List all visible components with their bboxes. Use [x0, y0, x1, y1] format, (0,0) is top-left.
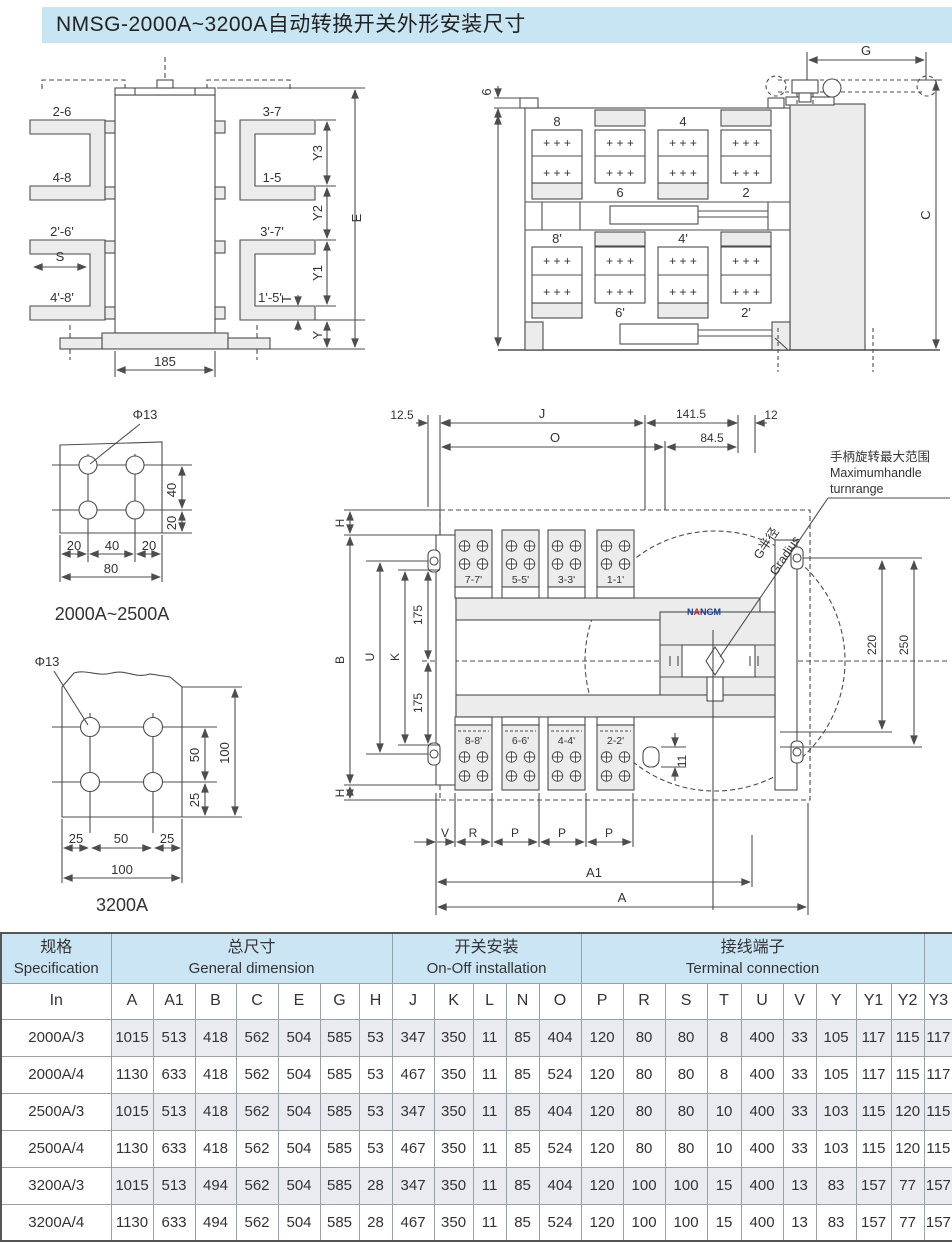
value-cell: 115: [891, 1056, 924, 1093]
value-cell: 585: [320, 1093, 359, 1130]
terminal-label: 3'-7': [260, 224, 284, 239]
value-cell: 15: [707, 1204, 741, 1241]
value-cell: 467: [392, 1204, 434, 1241]
value-cell: 115: [856, 1130, 891, 1167]
value-cell: 80: [623, 1019, 665, 1056]
table-row: 2000A/4113063341856250458553467350118552…: [1, 1056, 952, 1093]
value-cell: 350: [434, 1056, 473, 1093]
value-cell: 562: [236, 1056, 278, 1093]
value-cell: 157: [856, 1204, 891, 1241]
dim-label: 25: [160, 831, 174, 846]
value-cell: 494: [195, 1204, 236, 1241]
dim-label: H: [333, 519, 347, 528]
terminal-label: 4'-8': [50, 290, 74, 305]
value-cell: 157: [924, 1167, 952, 1204]
handle-note-en1: Maximumhandle: [830, 466, 922, 480]
value-cell: 418: [195, 1093, 236, 1130]
svg-text:+ + +: + + +: [669, 136, 697, 150]
value-cell: 350: [434, 1093, 473, 1130]
value-cell: 400: [741, 1167, 783, 1204]
value-cell: 585: [320, 1019, 359, 1056]
svg-text:+ + +: + + +: [669, 254, 697, 268]
table-row: 2000A/3101551341856250458553347350118540…: [1, 1019, 952, 1056]
value-cell: 80: [623, 1130, 665, 1167]
value-cell: 404: [539, 1093, 581, 1130]
value-cell: 11: [473, 1167, 506, 1204]
value-cell: 1015: [111, 1093, 153, 1130]
front-view-labels: 12.5 J 141.5 12 O 84.5 H B H U K 175 175…: [333, 406, 930, 905]
column-header: S: [665, 983, 707, 1019]
value-cell: 585: [320, 1204, 359, 1241]
column-header: T: [707, 983, 741, 1019]
value-cell: 11: [473, 1019, 506, 1056]
column-header: A1: [153, 983, 195, 1019]
block-label: 2': [741, 305, 751, 320]
value-cell: 1130: [111, 1056, 153, 1093]
value-cell: 53: [359, 1093, 392, 1130]
dim-label: 12.5: [390, 408, 414, 422]
column-header: V: [783, 983, 816, 1019]
svg-text:+ + +: + + +: [732, 166, 760, 180]
column-header: Y: [816, 983, 856, 1019]
dim-label: 185: [154, 354, 176, 369]
terminal-label: 1-1': [607, 574, 624, 586]
value-cell: 350: [434, 1019, 473, 1056]
value-cell: 120: [581, 1019, 623, 1056]
plate-caption: 2000A~2500A: [55, 604, 170, 624]
value-cell: 504: [278, 1130, 320, 1167]
value-cell: 120: [581, 1130, 623, 1167]
spec-cell: 3200A/4: [1, 1204, 111, 1241]
dim-label: 40: [105, 538, 119, 553]
table-group-header-row: 规格Specification 总尺寸General dimension 开关安…: [1, 933, 952, 983]
value-cell: 1130: [111, 1204, 153, 1241]
value-cell: 562: [236, 1093, 278, 1130]
plate-2000-drawing: Φ13 40 20 20 40 20 80 2000A~2500A: [42, 402, 272, 637]
table-row: 3200A/4113063349456250458528467350118552…: [1, 1204, 952, 1241]
terminal-label: 4-4': [558, 735, 575, 747]
dim-label: E: [349, 213, 364, 222]
value-cell: 400: [741, 1093, 783, 1130]
plate-caption: 3200A: [96, 895, 148, 915]
value-cell: 347: [392, 1019, 434, 1056]
value-cell: 33: [783, 1093, 816, 1130]
value-cell: 77: [891, 1167, 924, 1204]
dim-label: U: [363, 653, 377, 662]
value-cell: 80: [623, 1093, 665, 1130]
table-row: 3200A/3101551349456250458528347350118540…: [1, 1167, 952, 1204]
value-cell: 117: [924, 1056, 952, 1093]
front-view-drawing: 12.5 J 141.5 12 O 84.5 H B H U K 175 175…: [330, 395, 952, 930]
value-cell: 513: [153, 1167, 195, 1204]
value-cell: 115: [924, 1130, 952, 1167]
value-cell: 400: [741, 1056, 783, 1093]
terminal-label: 8-8': [465, 735, 482, 747]
value-cell: 15: [707, 1167, 741, 1204]
value-cell: 467: [392, 1056, 434, 1093]
dim-label: P: [558, 826, 566, 840]
column-header: Y1: [856, 983, 891, 1019]
dim-label: O: [550, 430, 560, 445]
value-cell: 404: [539, 1167, 581, 1204]
svg-text:+ + +: + + +: [606, 136, 634, 150]
value-cell: 83: [816, 1167, 856, 1204]
group-empty: [924, 933, 952, 983]
dim-label: 250: [897, 635, 911, 655]
column-header: U: [741, 983, 783, 1019]
svg-text:+ + +: + + +: [543, 166, 571, 180]
spec-sheet-page: NMSG-2000A~3200A自动转换开关外形安装尺寸: [0, 0, 952, 1243]
table-row: 2500A/4113063341856250458553467350118552…: [1, 1130, 952, 1167]
column-header: R: [623, 983, 665, 1019]
svg-text:+ + +: + + +: [543, 136, 571, 150]
value-cell: 85: [506, 1019, 539, 1056]
handle-note-en2: turnrange: [830, 482, 884, 496]
value-cell: 11: [473, 1130, 506, 1167]
value-cell: 103: [816, 1130, 856, 1167]
value-cell: 115: [856, 1093, 891, 1130]
dim-label: 12: [764, 408, 778, 422]
value-cell: 494: [195, 1167, 236, 1204]
dim-label: 40: [164, 483, 179, 497]
value-cell: 633: [153, 1130, 195, 1167]
value-cell: 633: [153, 1204, 195, 1241]
dim-label: S: [56, 249, 65, 264]
dim-label: 100: [217, 742, 232, 764]
spec-cell: 2000A/3: [1, 1019, 111, 1056]
plate-3200-drawing: Φ13 50 25 100 25 50 25 100 3200A: [22, 643, 272, 928]
dim-label: P: [605, 826, 613, 840]
svg-text:+ + +: + + +: [606, 254, 634, 268]
value-cell: 585: [320, 1130, 359, 1167]
value-cell: 120: [891, 1130, 924, 1167]
side-view-drawing: 2-6 4-8 2'-6' 4'-8' 3-7 1-5 3'-7' 1'-5' …: [20, 55, 380, 400]
dim-label: 175: [411, 605, 425, 625]
value-cell: 11: [473, 1204, 506, 1241]
value-cell: 585: [320, 1056, 359, 1093]
dim-label: 11: [675, 754, 689, 767]
column-header: C: [236, 983, 278, 1019]
column-header: E: [278, 983, 320, 1019]
terminal-label: 5-5': [512, 574, 529, 586]
dim-label: 50: [114, 831, 128, 846]
value-cell: 80: [665, 1019, 707, 1056]
value-cell: 100: [665, 1167, 707, 1204]
value-cell: 504: [278, 1167, 320, 1204]
value-cell: 85: [506, 1093, 539, 1130]
value-cell: 400: [741, 1019, 783, 1056]
value-cell: 157: [924, 1204, 952, 1241]
dim-label: G: [861, 43, 871, 58]
column-header: G: [320, 983, 359, 1019]
value-cell: 80: [665, 1056, 707, 1093]
dim-label: 20: [67, 538, 81, 553]
value-cell: 400: [741, 1204, 783, 1241]
svg-text:+ + +: + + +: [732, 254, 760, 268]
value-cell: 504: [278, 1204, 320, 1241]
value-cell: 77: [891, 1204, 924, 1241]
block-label: 4': [678, 231, 688, 246]
value-cell: 117: [856, 1056, 891, 1093]
value-cell: 85: [506, 1056, 539, 1093]
value-cell: 524: [539, 1204, 581, 1241]
value-cell: 347: [392, 1093, 434, 1130]
column-header: L: [473, 983, 506, 1019]
value-cell: 33: [783, 1019, 816, 1056]
value-cell: 53: [359, 1130, 392, 1167]
dim-label: P: [511, 826, 519, 840]
value-cell: 105: [816, 1056, 856, 1093]
group-spec: 规格Specification: [1, 933, 111, 983]
value-cell: 83: [816, 1204, 856, 1241]
dim-label: 100: [111, 862, 133, 877]
dim-label: B: [333, 656, 347, 664]
dim-label: 50: [187, 748, 202, 762]
dim-label: Y3: [310, 145, 325, 161]
value-cell: 28: [359, 1204, 392, 1241]
value-cell: 53: [359, 1056, 392, 1093]
svg-text:+ + +: + + +: [669, 166, 697, 180]
value-cell: 633: [153, 1056, 195, 1093]
value-cell: 13: [783, 1204, 816, 1241]
dim-label: 141.5: [676, 407, 706, 421]
value-cell: 100: [665, 1204, 707, 1241]
value-cell: 350: [434, 1130, 473, 1167]
value-cell: 13: [783, 1167, 816, 1204]
column-header: B: [195, 983, 236, 1019]
dim-label: J: [539, 406, 546, 421]
dim-label: C: [918, 210, 933, 219]
column-header: Y3: [924, 983, 952, 1019]
dim-label: K: [388, 653, 402, 661]
value-cell: 513: [153, 1093, 195, 1130]
value-cell: 11: [473, 1093, 506, 1130]
value-cell: 100: [623, 1204, 665, 1241]
spec-cell: 2500A/3: [1, 1093, 111, 1130]
hole-diameter-label: Φ13: [35, 654, 60, 669]
value-cell: 85: [506, 1130, 539, 1167]
terminal-label: 7-7': [465, 574, 482, 586]
value-cell: 1015: [111, 1019, 153, 1056]
terminal-label: 2-6: [53, 104, 72, 119]
column-header: J: [392, 983, 434, 1019]
brand-logo: NANGM: [687, 607, 721, 617]
value-cell: 80: [623, 1056, 665, 1093]
value-cell: 350: [434, 1204, 473, 1241]
value-cell: 115: [924, 1093, 952, 1130]
value-cell: 120: [581, 1093, 623, 1130]
dim-label: 84.5: [700, 431, 724, 445]
dim-label: 20: [164, 516, 179, 530]
terminal-label: 2-2': [607, 735, 624, 747]
svg-text:+ + +: + + +: [732, 136, 760, 150]
terminal-label: 6-6': [512, 735, 529, 747]
svg-text:+ + +: + + +: [606, 166, 634, 180]
dim-label: Y1: [310, 265, 325, 281]
value-cell: 562: [236, 1167, 278, 1204]
group-general-dimension: 总尺寸General dimension: [111, 933, 392, 983]
spec-cell: 2500A/4: [1, 1130, 111, 1167]
value-cell: 53: [359, 1019, 392, 1056]
dim-label: Y: [310, 330, 325, 339]
table-column-header-row: InAA1BCEGHJKLNOPRSTUVYY1Y2Y3: [1, 983, 952, 1019]
value-cell: 120: [891, 1093, 924, 1130]
value-cell: 115: [891, 1019, 924, 1056]
value-cell: 524: [539, 1056, 581, 1093]
dim-label: 20: [142, 538, 156, 553]
spec-table: 规格Specification 总尺寸General dimension 开关安…: [0, 932, 952, 1242]
svg-text:+ + +: + + +: [606, 285, 634, 299]
value-cell: 28: [359, 1167, 392, 1204]
value-cell: 1130: [111, 1130, 153, 1167]
value-cell: 504: [278, 1019, 320, 1056]
value-cell: 504: [278, 1056, 320, 1093]
column-header: P: [581, 983, 623, 1019]
value-cell: 467: [392, 1130, 434, 1167]
value-cell: 120: [581, 1204, 623, 1241]
block-label: 8': [552, 231, 562, 246]
column-header: K: [434, 983, 473, 1019]
column-header: In: [1, 983, 111, 1019]
dim-label: 25: [187, 793, 202, 807]
group-terminal-connection: 接线端子Terminal connection: [581, 933, 924, 983]
column-header: A: [111, 983, 153, 1019]
value-cell: 10: [707, 1093, 741, 1130]
value-cell: 400: [741, 1130, 783, 1167]
dim-label: Y2: [310, 205, 325, 221]
value-cell: 10: [707, 1130, 741, 1167]
group-onoff-installation: 开关安装On-Off installation: [392, 933, 581, 983]
terminal-label: 2'-6': [50, 224, 74, 239]
svg-text:+ + +: + + +: [543, 285, 571, 299]
value-cell: 562: [236, 1130, 278, 1167]
table-row: 2500A/3101551341856250458553347350118540…: [1, 1093, 952, 1130]
column-header: Y2: [891, 983, 924, 1019]
column-header: H: [359, 983, 392, 1019]
value-cell: 85: [506, 1204, 539, 1241]
value-cell: 33: [783, 1056, 816, 1093]
value-cell: 100: [623, 1167, 665, 1204]
dim-label: V: [441, 826, 449, 840]
value-cell: 33: [783, 1130, 816, 1167]
column-header: O: [539, 983, 581, 1019]
value-cell: 1015: [111, 1167, 153, 1204]
dim-label: A1: [586, 865, 602, 880]
value-cell: 562: [236, 1019, 278, 1056]
terminal-label: 3-3': [558, 574, 575, 586]
hole-diameter-label: Φ13: [133, 407, 158, 422]
value-cell: 8: [707, 1056, 741, 1093]
value-cell: 524: [539, 1130, 581, 1167]
value-cell: 585: [320, 1167, 359, 1204]
value-cell: 8: [707, 1019, 741, 1056]
value-cell: 117: [856, 1019, 891, 1056]
value-cell: 103: [816, 1093, 856, 1130]
value-cell: 117: [924, 1019, 952, 1056]
block-label: 4: [679, 114, 686, 129]
value-cell: 350: [434, 1167, 473, 1204]
value-cell: 347: [392, 1167, 434, 1204]
dim-label: A: [618, 890, 627, 905]
value-cell: 120: [581, 1056, 623, 1093]
dim-label: 175: [411, 693, 425, 713]
block-label: 6: [616, 185, 623, 200]
dim-label: T: [279, 295, 294, 303]
value-cell: 105: [816, 1019, 856, 1056]
value-cell: 11: [473, 1056, 506, 1093]
rear-view-drawing: G C 6 8 4 6 2 8' 4' 6' 2' + + ++ + + + +…: [480, 40, 952, 385]
page-title: NMSG-2000A~3200A自动转换开关外形安装尺寸: [42, 7, 952, 43]
svg-text:+ + +: + + +: [543, 254, 571, 268]
dim-label: 220: [865, 635, 879, 655]
dim-label: 80: [104, 561, 118, 576]
value-cell: 562: [236, 1204, 278, 1241]
terminal-label: 3-7: [263, 104, 282, 119]
value-cell: 404: [539, 1019, 581, 1056]
handle-note-cn: 手柄旋转最大范围: [830, 449, 930, 464]
value-cell: 513: [153, 1019, 195, 1056]
value-cell: 418: [195, 1019, 236, 1056]
value-cell: 80: [665, 1130, 707, 1167]
block-label: 6': [615, 305, 625, 320]
dim-label: 6: [480, 88, 494, 95]
block-label: 8: [553, 114, 560, 129]
terminal-label: 1-5: [263, 170, 282, 185]
dim-label: R: [469, 826, 478, 840]
svg-text:+ + +: + + +: [669, 285, 697, 299]
spec-cell: 2000A/4: [1, 1056, 111, 1093]
block-label: 2: [742, 185, 749, 200]
value-cell: 120: [581, 1167, 623, 1204]
value-cell: 80: [665, 1093, 707, 1130]
svg-text:+ + +: + + +: [732, 285, 760, 299]
value-cell: 418: [195, 1056, 236, 1093]
value-cell: 85: [506, 1167, 539, 1204]
dim-label: 25: [69, 831, 83, 846]
dim-label: H: [333, 789, 347, 798]
spec-cell: 3200A/3: [1, 1167, 111, 1204]
spec-table-body: 2000A/3101551341856250458553347350118540…: [1, 1019, 952, 1241]
value-cell: 418: [195, 1130, 236, 1167]
column-header: N: [506, 983, 539, 1019]
value-cell: 157: [856, 1167, 891, 1204]
terminal-label: 4-8: [53, 170, 72, 185]
value-cell: 504: [278, 1093, 320, 1130]
